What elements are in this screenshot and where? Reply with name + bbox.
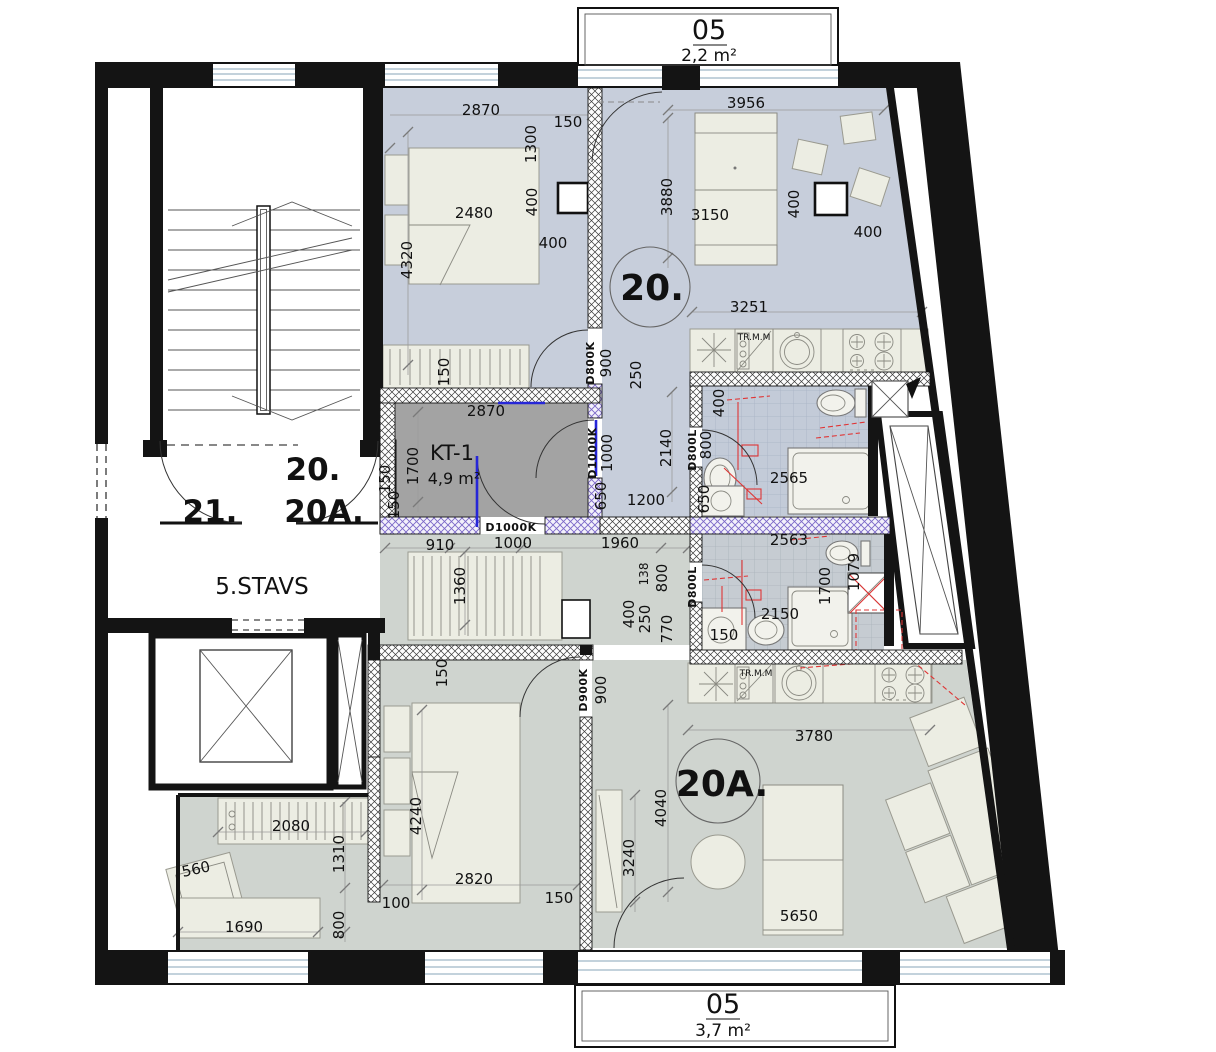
dims-label: 4040 bbox=[652, 789, 670, 827]
elevators bbox=[152, 626, 364, 787]
dims-label: 1700 bbox=[404, 447, 422, 485]
balconies-label: 2,2 m² bbox=[681, 46, 737, 66]
doors-label: D800L bbox=[686, 566, 699, 608]
dims-label: 150 bbox=[433, 659, 451, 688]
dims-label: 910 bbox=[426, 536, 455, 554]
dims-label: 2140 bbox=[657, 429, 675, 467]
dims-label: 2870 bbox=[462, 101, 500, 119]
floor-label: 5.STAVS bbox=[215, 574, 308, 600]
dims-label: 1960 bbox=[601, 534, 639, 552]
dims-label: 900 bbox=[597, 349, 615, 378]
dims-label: 1000 bbox=[494, 534, 532, 552]
kitchens-label: TR.M.M bbox=[739, 669, 773, 679]
balconies-label: 05 bbox=[692, 15, 726, 46]
rooms-label: KT-1 bbox=[430, 441, 474, 465]
dims-label: 3880 bbox=[658, 178, 676, 216]
wardrobe-corridor bbox=[408, 552, 562, 640]
dims-label: 4240 bbox=[407, 797, 425, 835]
dims-label: 800 bbox=[330, 911, 348, 940]
units-label: 21. bbox=[183, 494, 238, 530]
dims-label: 400 bbox=[785, 190, 803, 219]
sofa-bed-unit20 bbox=[695, 113, 777, 265]
dims-label: 650 bbox=[695, 485, 713, 514]
dims-label: 1690 bbox=[225, 918, 263, 936]
stairwell bbox=[168, 202, 360, 420]
dims-label: 1200 bbox=[627, 491, 665, 509]
dims-label: 900 bbox=[592, 676, 610, 705]
dims-label: 3251 bbox=[730, 298, 768, 316]
kitchens-label: TR.M.M bbox=[737, 333, 771, 343]
dims-label: 150 bbox=[385, 491, 403, 520]
doors-label: D900K bbox=[577, 668, 590, 711]
dims-label: 150 bbox=[435, 358, 453, 387]
kitchen-unit20a bbox=[688, 663, 932, 703]
units-label: 20A. bbox=[284, 494, 363, 530]
units-label: 20. bbox=[620, 268, 684, 309]
floor-plan-drawing: 20.20A.21.20.20A.5.STAVSKT-14,9 m²052,2 … bbox=[0, 0, 1216, 1052]
dims-label: 2820 bbox=[455, 870, 493, 888]
dims-label: 3780 bbox=[795, 727, 833, 745]
dims-label: 400 bbox=[539, 234, 568, 252]
dims-label: 770 bbox=[658, 615, 676, 644]
balconies-label: 05 bbox=[706, 989, 740, 1020]
dims-label: 3240 bbox=[620, 839, 638, 877]
dims-label: 2870 bbox=[467, 402, 505, 420]
dims-label: 800 bbox=[697, 431, 715, 460]
dims-label: 150 bbox=[376, 465, 394, 494]
dims-label: 3150 bbox=[691, 206, 729, 224]
duct-square bbox=[558, 183, 588, 213]
dims-label: 1000 bbox=[598, 434, 616, 472]
dims-label: 2563 bbox=[770, 531, 808, 549]
wardrobe-unit20 bbox=[383, 345, 529, 389]
dims-label: 400 bbox=[854, 223, 883, 241]
dims-label: 400 bbox=[710, 389, 728, 418]
dims-label: 150 bbox=[710, 626, 739, 644]
tv-cabinet bbox=[596, 790, 622, 912]
units-label: 20. bbox=[286, 452, 341, 488]
dims-label: 2080 bbox=[272, 817, 310, 835]
dims-label: 138 bbox=[637, 563, 651, 586]
dims-label: 800 bbox=[653, 564, 671, 593]
dims-label: 650 bbox=[592, 482, 610, 511]
dims-label: 4320 bbox=[398, 241, 416, 279]
doors-label: D800K bbox=[584, 341, 597, 384]
dims-label: 1300 bbox=[522, 125, 540, 163]
dims-label: 1079 bbox=[845, 553, 863, 591]
dims-label: 100 bbox=[382, 894, 411, 912]
dims-label: 250 bbox=[627, 361, 645, 390]
windows-bottom bbox=[168, 952, 1050, 983]
table-unit20 bbox=[815, 183, 847, 215]
dims-label: 250 bbox=[636, 605, 654, 634]
dims-label: 2480 bbox=[455, 204, 493, 222]
dims-label: 1700 bbox=[816, 567, 834, 605]
dims-label: 150 bbox=[545, 889, 574, 907]
dims-label: 2565 bbox=[770, 469, 808, 487]
dims-label: 1310 bbox=[330, 835, 348, 873]
dims-label: 3956 bbox=[727, 94, 765, 112]
dims-label: 1360 bbox=[451, 567, 469, 605]
dims-label: 2150 bbox=[761, 605, 799, 623]
round-table bbox=[691, 835, 745, 889]
balconies-label: 3,7 m² bbox=[695, 1021, 751, 1041]
floor-plan-page: 20.20A.21.20.20A.5.STAVSKT-14,9 m²052,2 … bbox=[0, 0, 1216, 1052]
dims-label: 150 bbox=[554, 113, 583, 131]
rooms-label: 4,9 m² bbox=[428, 469, 481, 488]
dims-label: 5650 bbox=[780, 907, 818, 925]
dims-label: 400 bbox=[523, 188, 541, 217]
kitchen-unit20 bbox=[690, 329, 928, 373]
units-label: 20A. bbox=[676, 764, 768, 805]
doors-label: D1000K bbox=[485, 521, 536, 534]
